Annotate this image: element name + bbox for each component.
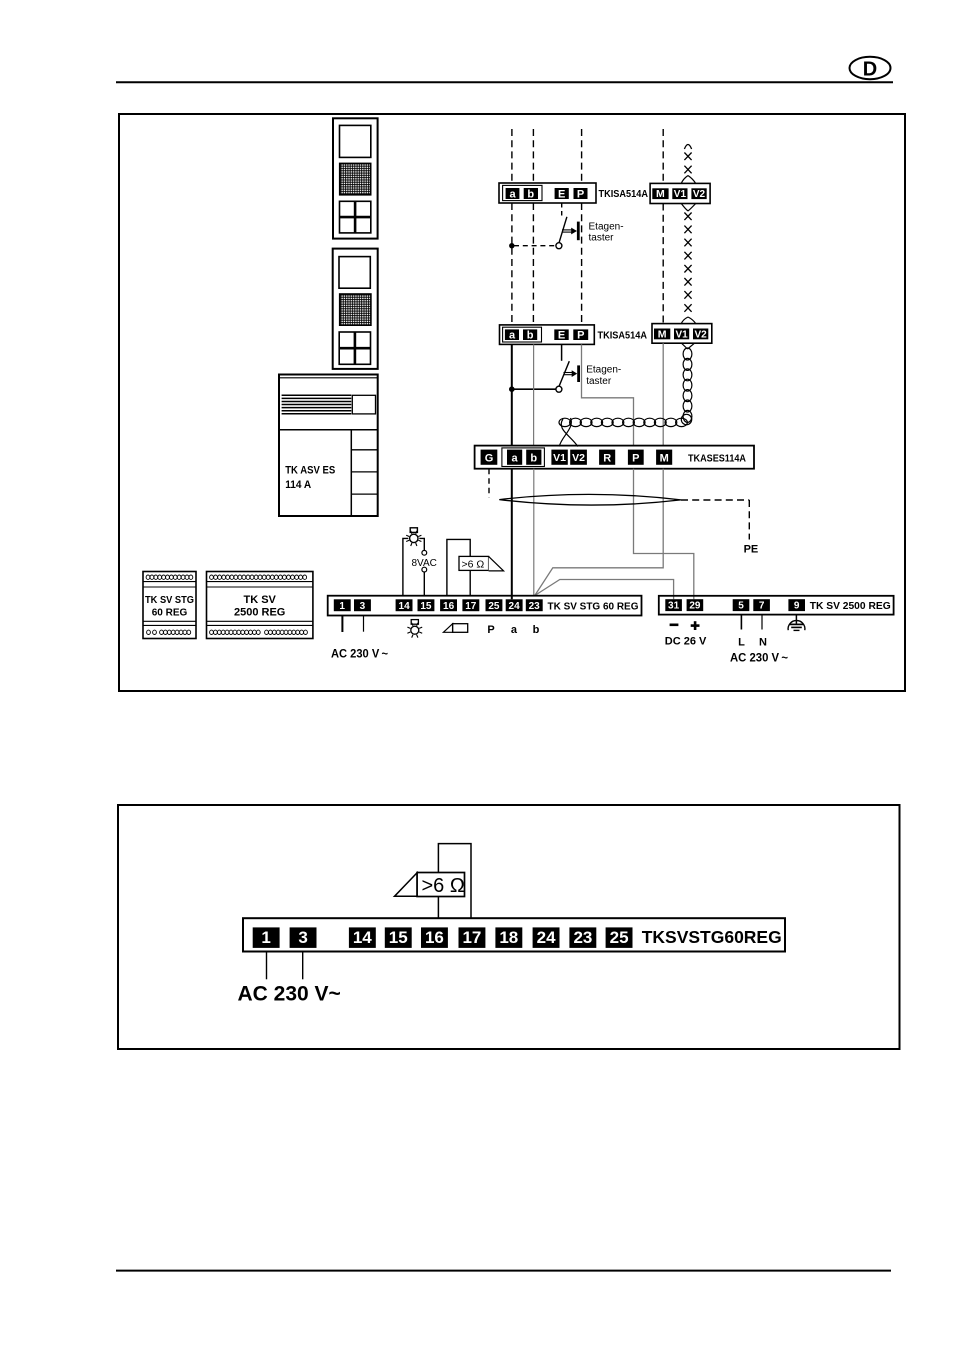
svg-text:15: 15 <box>420 601 432 612</box>
svg-text:L: L <box>738 637 745 649</box>
svg-text:P: P <box>632 452 639 464</box>
svg-text:TK SV: TK SV <box>243 594 276 606</box>
svg-text:16: 16 <box>443 601 455 612</box>
svg-text:M: M <box>658 328 667 340</box>
svg-text:2500 REG: 2500 REG <box>234 607 285 619</box>
svg-text:23: 23 <box>529 601 541 612</box>
svg-text:TKISA514A: TKISA514A <box>599 188 649 200</box>
svg-text:9: 9 <box>794 601 800 612</box>
svg-text:TK ASV ES: TK ASV ES <box>285 465 335 477</box>
svg-text:7: 7 <box>759 601 765 612</box>
svg-text:V1: V1 <box>675 329 688 340</box>
svg-text:P: P <box>487 624 494 636</box>
svg-text:N: N <box>759 637 767 649</box>
svg-text:23: 23 <box>573 928 592 947</box>
svg-text:R: R <box>603 452 611 464</box>
svg-text:DC 26 V: DC 26 V <box>665 635 707 647</box>
svg-text:25: 25 <box>488 601 500 612</box>
svg-text:16: 16 <box>425 928 444 947</box>
svg-text:3: 3 <box>298 928 307 947</box>
svg-text:E: E <box>558 330 565 342</box>
svg-text:M: M <box>660 452 669 464</box>
svg-text:V1: V1 <box>674 189 687 200</box>
svg-text:TKASES114A: TKASES114A <box>688 452 746 464</box>
svg-text:b: b <box>527 188 534 200</box>
svg-text:a: a <box>512 452 519 464</box>
svg-text:TK SV STG: TK SV STG <box>145 595 194 606</box>
svg-text:taster: taster <box>586 376 612 387</box>
svg-text:taster: taster <box>589 233 615 244</box>
svg-text:5: 5 <box>738 601 744 612</box>
svg-text:114 A: 114 A <box>285 479 311 491</box>
svg-text:M: M <box>656 188 665 200</box>
svg-text:AC 230 V ~: AC 230 V ~ <box>730 653 788 665</box>
svg-text:b: b <box>533 624 540 636</box>
svg-text:>6 Ω: >6 Ω <box>462 558 485 570</box>
svg-text:V2: V2 <box>694 329 707 340</box>
svg-text:60 REG: 60 REG <box>152 607 188 618</box>
svg-text:1: 1 <box>339 601 345 612</box>
svg-text:b: b <box>530 452 537 464</box>
svg-text:3: 3 <box>360 601 366 612</box>
svg-text:b: b <box>527 330 534 342</box>
svg-text:14: 14 <box>399 601 411 612</box>
svg-text:V2: V2 <box>693 189 706 200</box>
svg-text:8VAC: 8VAC <box>412 558 437 569</box>
svg-text:14: 14 <box>353 928 372 947</box>
svg-text:Etagen-: Etagen- <box>586 365 621 376</box>
svg-text:D: D <box>863 58 877 80</box>
svg-text:AC 230 V ~: AC 230 V ~ <box>331 648 388 660</box>
svg-text:TKISA514A: TKISA514A <box>598 330 648 342</box>
svg-text:a: a <box>509 330 516 342</box>
svg-text:Etagen-: Etagen- <box>589 221 624 232</box>
svg-text:P: P <box>577 188 584 200</box>
svg-text:AC 230 V~: AC 230 V~ <box>238 983 341 1006</box>
svg-text:24: 24 <box>509 601 521 612</box>
svg-text:31: 31 <box>668 601 680 612</box>
svg-text:18: 18 <box>499 928 518 947</box>
svg-text:TKSVSTG60REG: TKSVSTG60REG <box>642 927 782 947</box>
svg-text:V2: V2 <box>572 452 585 464</box>
svg-text:PE: PE <box>744 544 759 556</box>
svg-text:25: 25 <box>610 928 629 947</box>
svg-text:29: 29 <box>689 601 701 612</box>
svg-text:17: 17 <box>465 601 477 612</box>
svg-text:a: a <box>509 188 516 200</box>
svg-text:G: G <box>485 452 494 464</box>
svg-text:V1: V1 <box>553 452 566 464</box>
svg-text:TK SV STG 60 REG: TK SV STG 60 REG <box>548 600 639 612</box>
svg-text:TK SV 2500 REG: TK SV 2500 REG <box>810 600 891 612</box>
svg-text:17: 17 <box>462 928 481 947</box>
svg-text:>6 Ω: >6 Ω <box>422 875 465 897</box>
svg-text:a: a <box>511 624 518 636</box>
svg-text:1: 1 <box>261 928 270 947</box>
svg-text:P: P <box>577 330 584 342</box>
svg-text:E: E <box>558 188 565 200</box>
svg-text:15: 15 <box>389 928 408 947</box>
svg-text:24: 24 <box>537 928 556 947</box>
